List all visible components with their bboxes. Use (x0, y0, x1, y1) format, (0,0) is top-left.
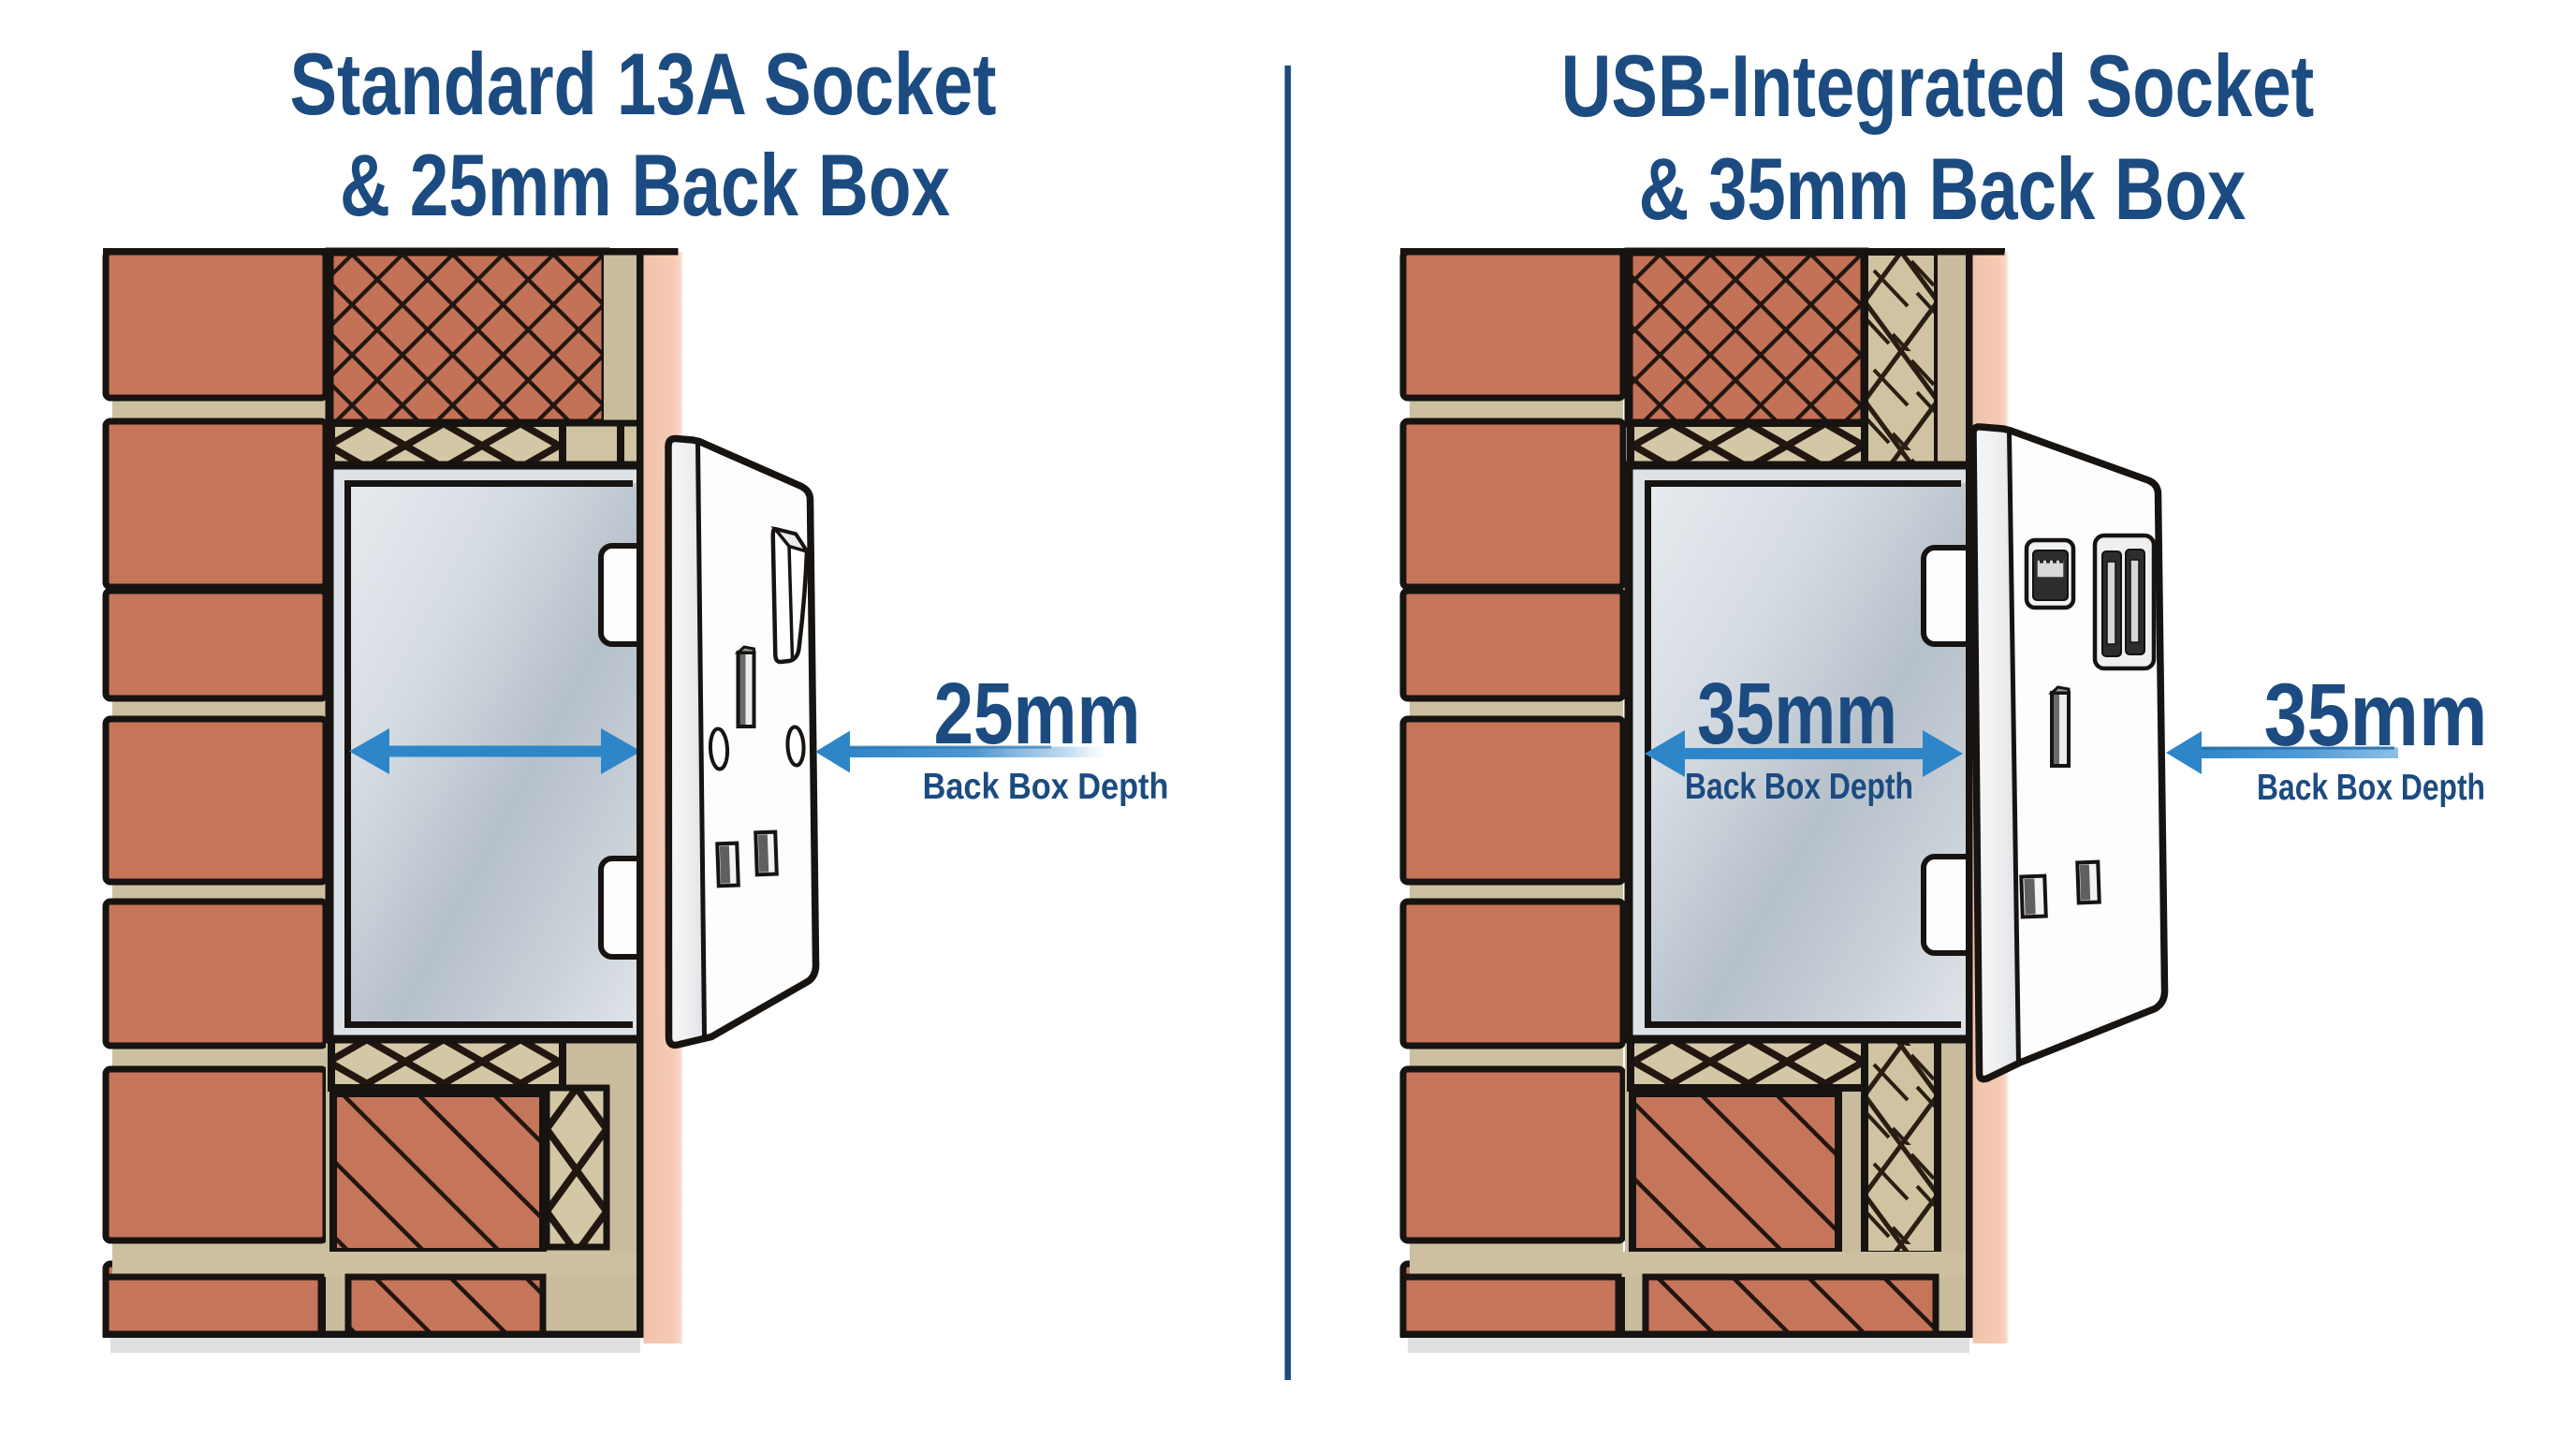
svg-text:35mm: 35mm (2264, 665, 2488, 765)
svg-text:25mm: 25mm (934, 666, 1141, 763)
svg-text:Back Box Depth: Back Box Depth (2257, 767, 2485, 808)
svg-text:Back Box Depth: Back Box Depth (923, 766, 1169, 807)
svg-text:Standard 13A Socket: Standard 13A Socket (290, 36, 997, 134)
svg-text:35mm: 35mm (1697, 665, 1897, 762)
svg-text:& 25mm Back Box: & 25mm Back Box (340, 136, 950, 234)
svg-text:Back Box Depth: Back Box Depth (1685, 766, 1913, 807)
svg-text:& 35mm Back Box: & 35mm Back Box (1639, 139, 2247, 238)
svg-text:USB-Integrated Socket: USB-Integrated Socket (1561, 37, 2314, 135)
